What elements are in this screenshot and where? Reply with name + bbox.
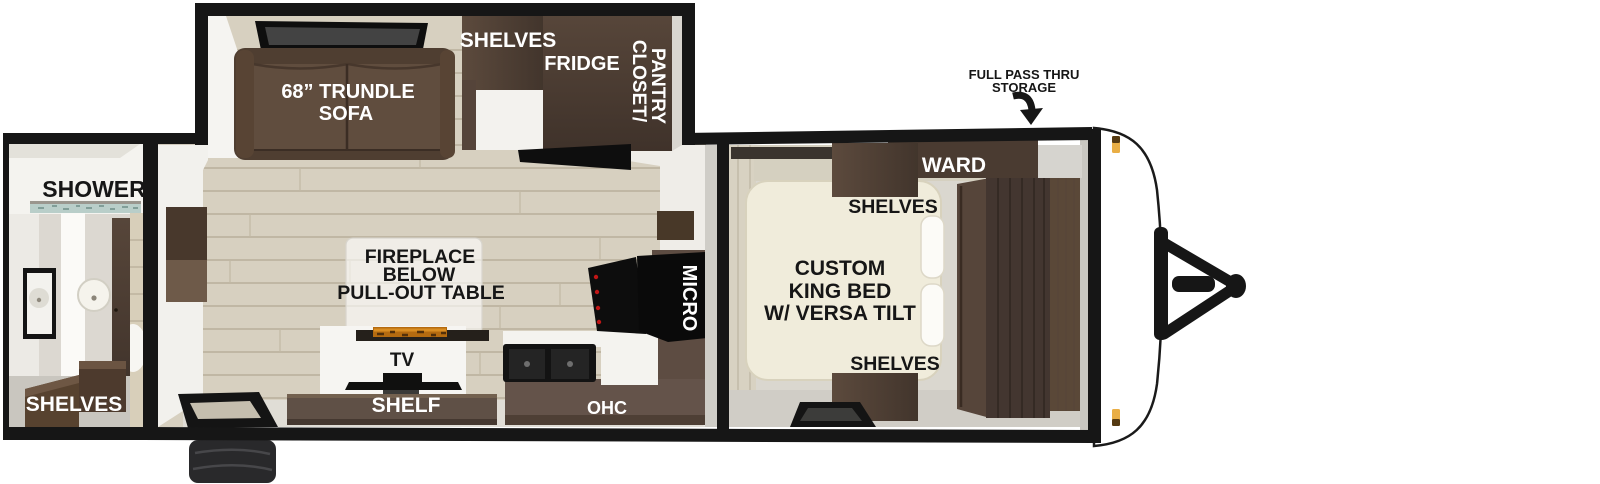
svg-text:PANTRY: PANTRY	[647, 48, 668, 124]
svg-text:WARD: WARD	[922, 154, 986, 177]
svg-text:SHOWER: SHOWER	[42, 176, 146, 202]
svg-text:FRIDGE: FRIDGE	[544, 53, 620, 75]
svg-text:SHELF: SHELF	[372, 394, 441, 417]
svg-text:68” TRUNDLE: 68” TRUNDLE	[281, 81, 414, 103]
svg-text:KING BED: KING BED	[789, 280, 892, 303]
svg-text:SHELVES: SHELVES	[460, 29, 556, 52]
svg-text:SHELVES: SHELVES	[26, 393, 122, 416]
svg-text:CLOSET/: CLOSET/	[628, 40, 649, 123]
svg-text:OHC: OHC	[587, 398, 627, 418]
svg-text:MICRO: MICRO	[678, 265, 700, 332]
svg-text:CUSTOM: CUSTOM	[795, 257, 886, 280]
svg-text:PULL-OUT TABLE: PULL-OUT TABLE	[337, 282, 505, 304]
svg-text:SHELVES: SHELVES	[848, 196, 938, 218]
svg-text:SOFA: SOFA	[319, 103, 373, 125]
svg-text:TV: TV	[390, 350, 415, 371]
svg-text:W/ VERSA TILT: W/ VERSA TILT	[764, 302, 916, 325]
svg-text:SHELVES: SHELVES	[850, 353, 940, 375]
